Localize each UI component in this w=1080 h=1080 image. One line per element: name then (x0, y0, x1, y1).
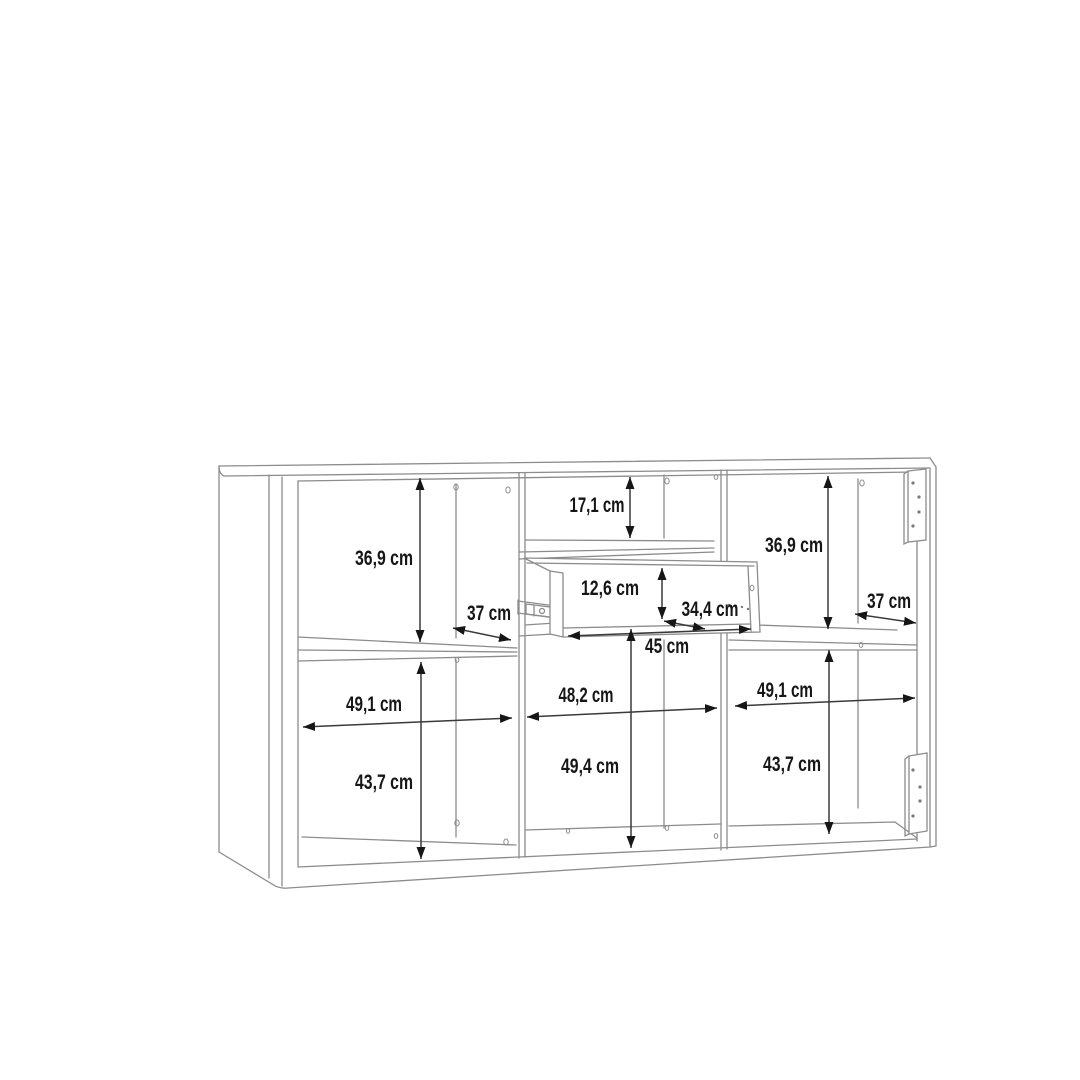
furniture-dimension-diagram: 36,9 cm 37 cm 49,1 cm 43,7 cm 17,1 cm 12… (0, 0, 1080, 1080)
cabinet-ceiling-line (298, 472, 917, 481)
dimension-label-middle-width: 48,2 cm (559, 684, 614, 707)
dimension-label-right-width: 49,1 cm (757, 679, 813, 702)
dimension-label-left-lower-height: 43,7 cm (355, 771, 413, 794)
shelf-middle-top (519, 540, 714, 559)
shelf-pin-holes (454, 475, 864, 845)
bottom-panel (288, 822, 936, 888)
dimension-arrow-left-shelf-depth (453, 628, 511, 640)
dimension-label-right-upper-height: 36,9 cm (765, 534, 823, 557)
partition-right (664, 470, 727, 850)
dimension-label-middle-opening-height: 49,4 cm (561, 755, 619, 778)
cabinet-dimension-drawing: 36,9 cm 37 cm 49,1 cm 43,7 cm 17,1 cm 12… (0, 0, 1080, 1080)
dimension-label-right-shelf-depth: 37 cm (867, 590, 911, 613)
left-side-panel (219, 466, 298, 888)
dimension-label-middle-top-shelf-height: 17,1 cm (570, 494, 625, 517)
dimension-label-middle-lower-height: 45 cm (645, 635, 689, 658)
dimension-label-drawer-depth: 34,4 cm (682, 598, 739, 621)
dimension-arrow-left-width (303, 718, 512, 727)
dimension-arrow-right-shelf-depth (855, 614, 916, 623)
hinge-plate-bottom (905, 753, 927, 836)
hinge-plate-top (904, 469, 926, 544)
dimension-label-right-lower-height: 43,7 cm (763, 753, 821, 776)
dimension-label-left-shelf-depth: 37 cm (467, 602, 511, 625)
dimension-arrow-middle-width (527, 708, 717, 717)
partition-left (456, 473, 525, 858)
dimension-label-left-width: 49,1 cm (346, 693, 402, 716)
dimension-label-left-upper-height: 36,9 cm (355, 547, 413, 570)
shelf-left (298, 637, 517, 661)
dimension-label-drawer-height: 12,6 cm (581, 577, 639, 600)
dimension-arrows (303, 476, 916, 859)
